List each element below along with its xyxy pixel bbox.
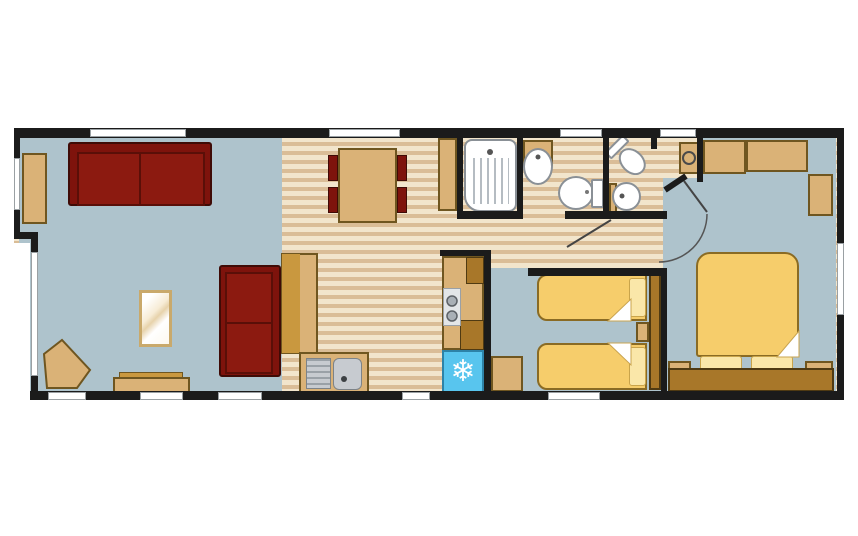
dining-chair — [328, 155, 338, 181]
sofa-top-seat — [77, 152, 205, 206]
tall-cabinet — [438, 138, 457, 211]
wall-twin-master — [661, 268, 667, 394]
single-bed-pillow — [629, 278, 646, 317]
single-bed-pillow — [629, 347, 646, 386]
coffee-table — [139, 290, 172, 347]
dining-chair — [328, 187, 338, 213]
toilet-bowl — [558, 176, 594, 210]
dining-chair — [397, 187, 407, 213]
floor-plan-canvas: ❄ — [0, 0, 858, 536]
wash-basin — [523, 148, 553, 185]
wall-twin-left — [484, 250, 491, 394]
sink-basin — [333, 358, 362, 390]
window-right-master — [837, 243, 844, 315]
sofa-top — [68, 142, 212, 206]
kitchen-base-unit-door — [460, 320, 484, 350]
sofa-side-cushion-divider — [226, 322, 272, 324]
twin-chest-unit — [491, 356, 523, 392]
kitchen-worktop-cabinet — [282, 254, 300, 353]
window-bottom-twin — [548, 392, 600, 400]
kitchen-base-unit-door — [466, 257, 484, 284]
window-bottom-kitchen — [402, 392, 430, 400]
bench-top — [119, 372, 183, 378]
twin-wardrobe — [649, 272, 661, 390]
overhead-unit — [746, 140, 808, 172]
window-bottom-living-1 — [48, 392, 86, 400]
window-top-ensuite — [660, 129, 696, 137]
exterior-mask — [14, 243, 30, 400]
shower-tray-lines — [473, 158, 509, 204]
double-bed — [696, 252, 799, 357]
sofa-top-cushion-divider — [139, 154, 141, 206]
sideboard — [22, 153, 47, 224]
window-top-living — [90, 129, 186, 137]
wall-below-shower — [457, 211, 523, 219]
overhead-unit — [703, 140, 746, 174]
sofa-side — [219, 265, 281, 377]
headboard — [668, 368, 834, 392]
dining-chair — [397, 155, 407, 181]
window-bottom-living-3 — [218, 392, 262, 400]
hob — [443, 288, 461, 326]
wall-bathroom-left — [457, 133, 463, 219]
wall-ensuite-divider — [603, 133, 609, 219]
snowflake-icon: ❄ — [450, 357, 475, 387]
wall-twin-top — [528, 268, 667, 276]
window-bottom-living-2 — [140, 392, 183, 400]
wall-bathroom-bottom — [565, 211, 667, 219]
vanity-basin-unit — [679, 142, 699, 174]
sink-drainer — [306, 358, 331, 389]
dining-table — [338, 148, 397, 223]
fridge: ❄ — [442, 350, 484, 393]
window-left-upper — [14, 158, 20, 210]
window-top-bathroom — [560, 129, 602, 137]
wall-shower-right — [517, 133, 523, 219]
wall-vanity-right — [697, 138, 703, 182]
bedside-unit — [636, 322, 649, 342]
wardrobe-unit — [808, 174, 833, 216]
ensuite-wash-basin — [612, 182, 641, 211]
window-top-dining — [329, 129, 400, 137]
window-left-lower — [31, 252, 38, 376]
